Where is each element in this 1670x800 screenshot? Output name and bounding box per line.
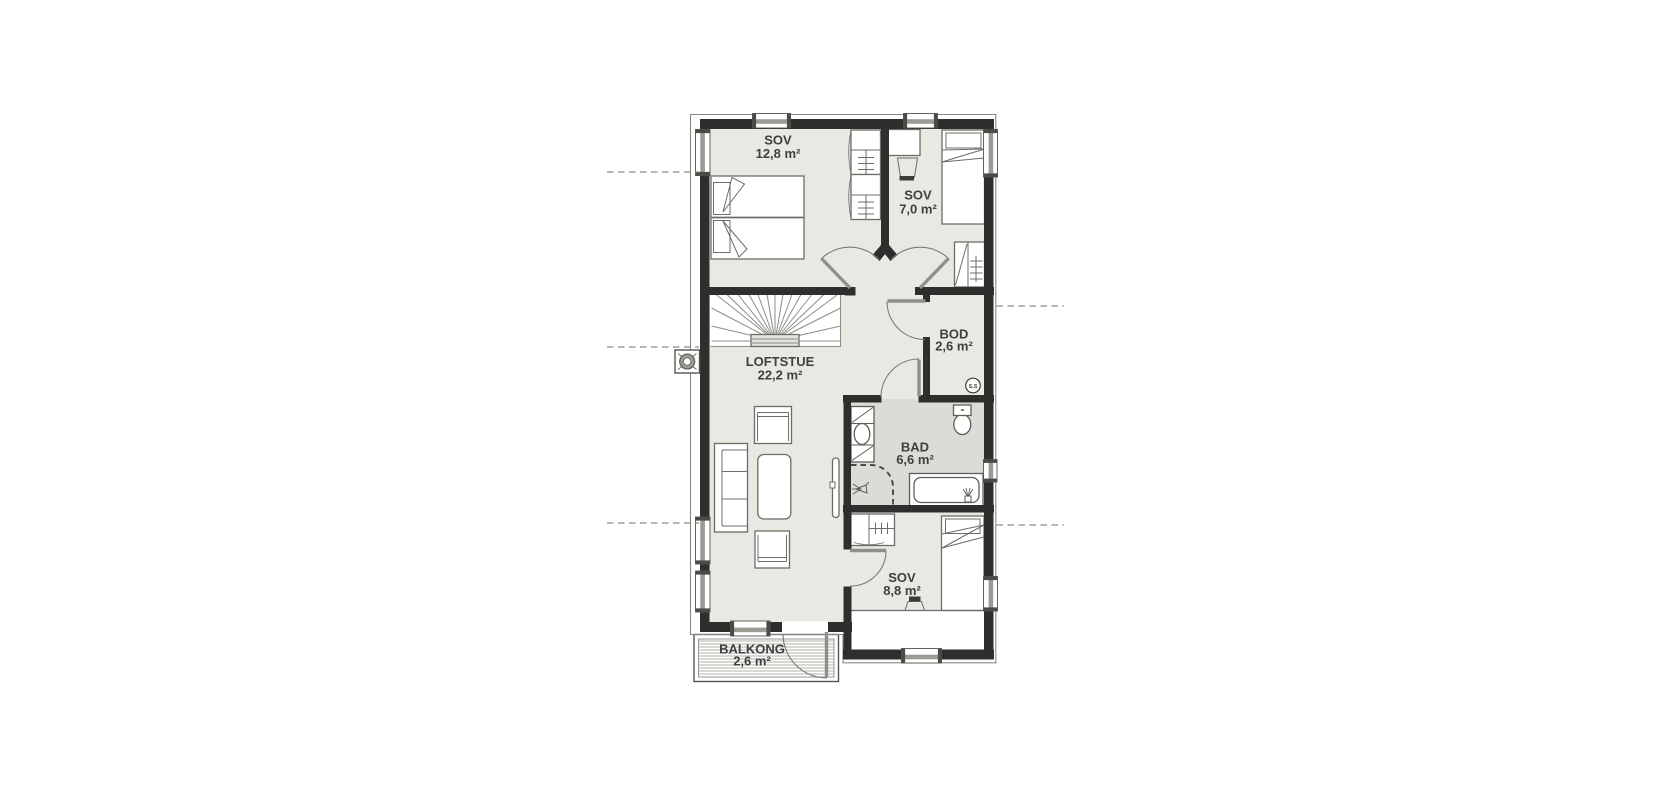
svg-text:SOV: SOV (904, 188, 932, 203)
svg-text:8,8 m²: 8,8 m² (883, 583, 921, 598)
svg-text:22,2 m²: 22,2 m² (758, 368, 803, 383)
svg-text:S.S: S.S (969, 384, 978, 390)
svg-text:7,0 m²: 7,0 m² (899, 202, 937, 217)
svg-text:6,6 m²: 6,6 m² (896, 452, 934, 467)
svg-text:12,8 m²: 12,8 m² (756, 146, 801, 161)
svg-text:2,6 m²: 2,6 m² (733, 654, 771, 669)
svg-text:2,6 m²: 2,6 m² (935, 339, 973, 354)
